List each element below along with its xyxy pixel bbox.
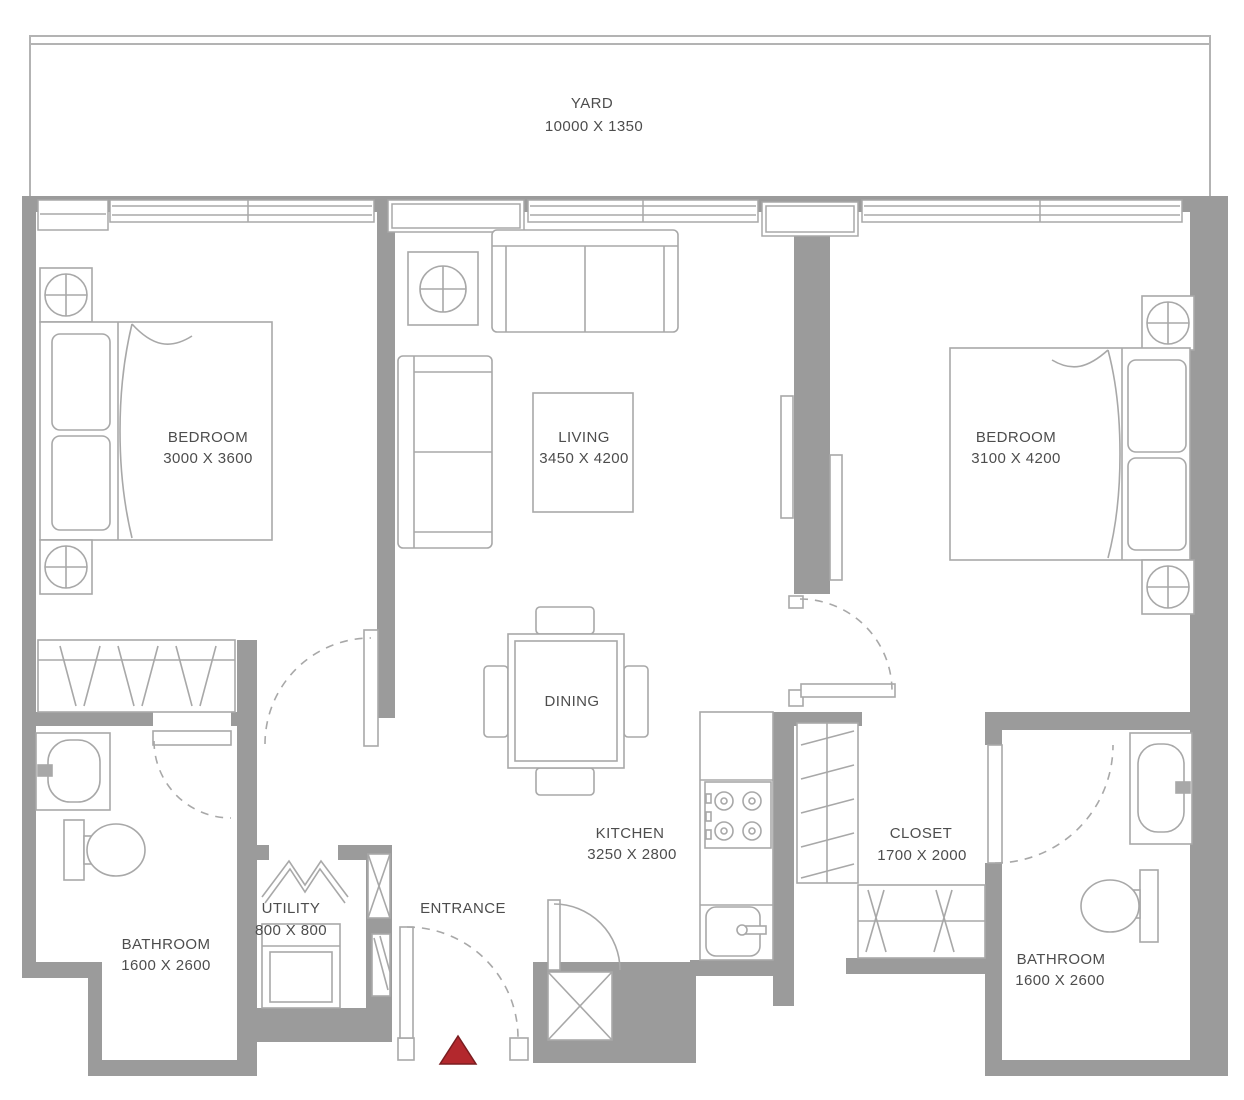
wall-bath2-bottom <box>985 1060 1228 1076</box>
chair-icon <box>536 607 594 634</box>
wall-bath1-top-left <box>36 712 153 726</box>
kitchen-sink-icon <box>706 907 766 956</box>
yard-boundary <box>30 36 1210 196</box>
door-utility-bifold <box>262 861 348 903</box>
nightstand-lamp-icon <box>40 540 92 594</box>
floor-plan: YARD 10000 X 1350 BEDROOM 3000 X 3600 LI… <box>0 0 1244 1100</box>
closet-dims: 1700 X 2000 <box>877 847 966 864</box>
wardrobe-closet-left <box>797 723 858 883</box>
sofa-top <box>492 230 678 332</box>
floor-plan-drawing: YARD 10000 X 1350 BEDROOM 3000 X 3600 LI… <box>0 0 1244 1100</box>
wall-utility-stub-left <box>257 845 269 860</box>
wall-utility-bottom <box>257 1008 366 1042</box>
toilet-icon <box>64 820 145 880</box>
window-bedroom2-icon <box>862 200 1182 222</box>
door-bathroom2 <box>988 745 1113 863</box>
bedroom1-label: BEDROOM <box>168 429 248 446</box>
bathroom2-dims: 1600 X 2600 <box>1015 972 1104 989</box>
chair-icon <box>536 768 594 795</box>
wall-bedroom1-living <box>377 212 395 718</box>
nightstand-lamp-icon <box>1142 560 1194 614</box>
wall-utility-stub-right <box>338 845 366 860</box>
bedroom1-dims: 3000 X 3600 <box>163 450 252 467</box>
bathroom1-label: BATHROOM <box>122 936 211 953</box>
utility-label: UTILITY <box>262 900 321 917</box>
wall-bath2-left-bottom <box>985 863 1002 1076</box>
dresser-bedroom2 <box>830 455 842 580</box>
kitchen-label: KITCHEN <box>596 825 665 842</box>
door-bedroom1 <box>265 630 378 746</box>
wall-bath2-top <box>985 712 1192 730</box>
wardrobe-bedroom1 <box>38 640 235 712</box>
shaft-x-icon <box>548 972 612 1040</box>
closet-label: CLOSET <box>890 825 952 842</box>
bedroom2-label: BEDROOM <box>976 429 1056 446</box>
wall-closet-bottom <box>846 958 990 974</box>
window-corner-left-icon <box>38 200 108 230</box>
side-table-lamp-icon <box>408 252 478 325</box>
utility-dims: 800 X 800 <box>255 922 327 939</box>
wall-living-bedroom2 <box>794 212 830 594</box>
duct-x-icon <box>368 854 390 918</box>
window-living-box-icon <box>388 200 524 232</box>
yard-dims: 10000 X 1350 <box>545 118 643 135</box>
bathroom2-sink-icon <box>1130 733 1192 844</box>
chair-icon <box>624 666 648 737</box>
bathroom1-sink-icon <box>36 733 110 810</box>
door-entrance <box>398 927 528 1060</box>
living-dims: 3450 X 4200 <box>539 450 628 467</box>
kitchen-dims: 3250 X 2800 <box>587 846 676 863</box>
sofa-left <box>398 356 492 548</box>
dining-label: DINING <box>545 693 600 710</box>
chair-icon <box>484 666 508 737</box>
window-bedroom1-icon <box>110 200 374 222</box>
entrance-label: ENTRANCE <box>420 900 506 917</box>
toilet-icon <box>1081 870 1158 942</box>
door-bedroom2 <box>789 596 895 706</box>
door-bathroom1 <box>153 731 231 818</box>
tv-unit-living <box>781 396 793 518</box>
yard-outline <box>30 36 1210 196</box>
wall-exterior-left <box>22 196 36 978</box>
wall-hall-left <box>237 640 257 1076</box>
wardrobe-closet-bottom <box>858 885 985 958</box>
wall-bath1-bottom <box>88 1060 257 1076</box>
yard-label: YARD <box>571 95 613 112</box>
bathroom2-label: BATHROOM <box>1017 951 1106 968</box>
window-living-icon <box>528 200 758 222</box>
wall-exterior-right <box>1190 196 1228 1076</box>
window-mid-box-icon <box>762 202 858 236</box>
duct-hatch-icon <box>372 934 390 996</box>
living-label: LIVING <box>558 429 610 446</box>
wall-kitchen-bottom <box>690 960 794 976</box>
wall-bath1-top-right <box>231 712 257 726</box>
entrance-marker-icon <box>440 1036 476 1064</box>
furniture <box>36 230 1194 1040</box>
nightstand-lamp-icon <box>1142 296 1194 350</box>
wall-bath1-left <box>88 962 102 1076</box>
stove-icon <box>705 782 771 848</box>
door-kitchen <box>548 900 620 970</box>
nightstand-lamp-icon <box>40 268 92 322</box>
bathroom1-dims: 1600 X 2600 <box>121 957 210 974</box>
bedroom2-dims: 3100 X 4200 <box>971 450 1060 467</box>
